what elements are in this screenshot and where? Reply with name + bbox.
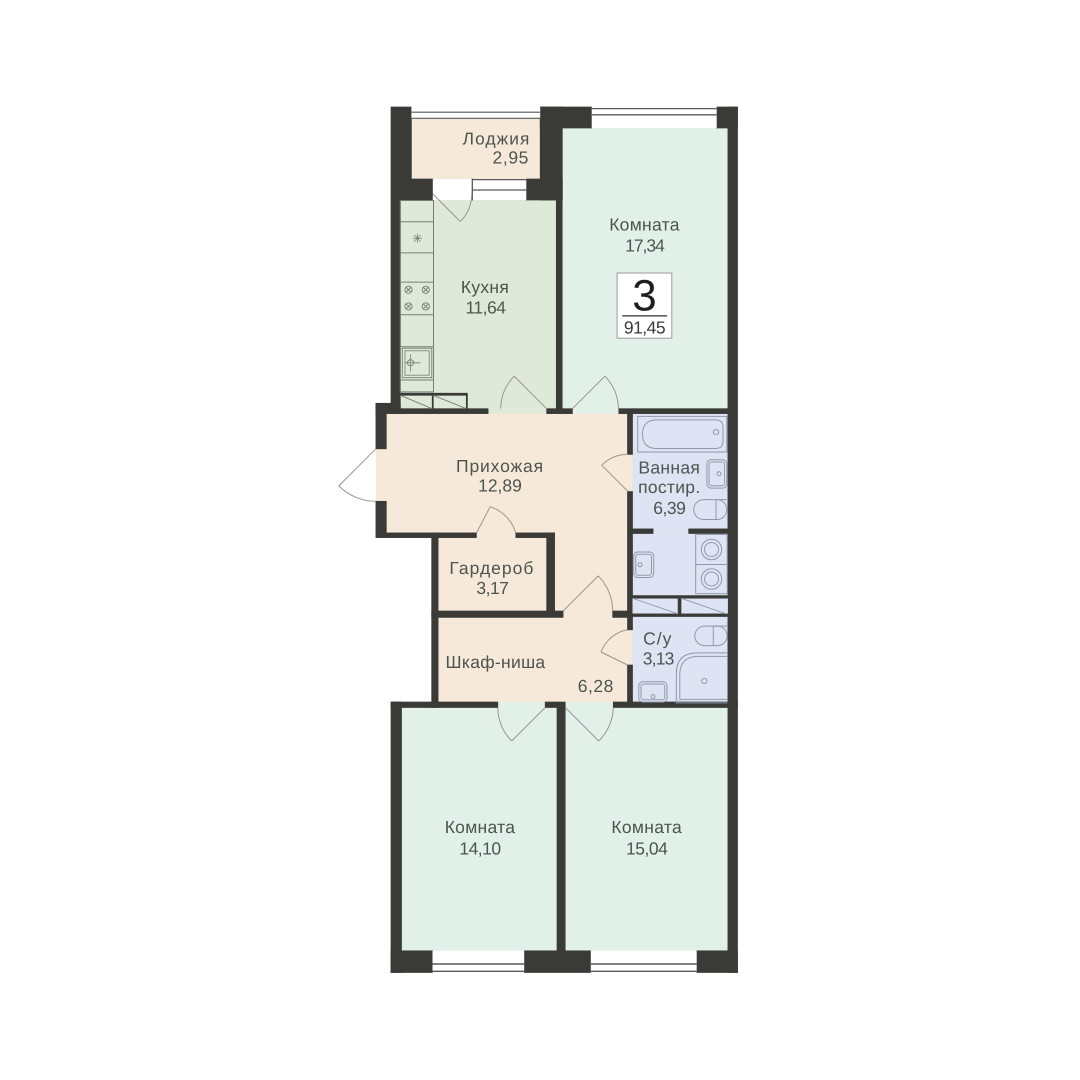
svg-text:11,64: 11,64 [466, 298, 507, 318]
svg-text:3: 3 [632, 272, 656, 321]
svg-text:Прихожая: Прихожая [456, 456, 544, 476]
svg-text:6,28: 6,28 [578, 676, 614, 696]
svg-text:14,10: 14,10 [459, 839, 501, 859]
svg-text:17,34: 17,34 [625, 235, 665, 255]
svg-text:Комната: Комната [611, 817, 682, 837]
svg-text:3,17: 3,17 [476, 578, 508, 598]
svg-text:Шкаф-ниша: Шкаф-ниша [446, 652, 546, 672]
svg-text:3,13: 3,13 [643, 649, 674, 669]
svg-text:6,39: 6,39 [653, 498, 685, 518]
svg-text:Кухня: Кухня [461, 277, 509, 297]
svg-text:12,89: 12,89 [478, 476, 522, 496]
svg-text:постир.: постир. [638, 477, 700, 497]
svg-text:15,04: 15,04 [626, 839, 668, 859]
svg-text:Гардероб: Гардероб [449, 558, 534, 578]
svg-text:Ванная: Ванная [638, 458, 700, 478]
svg-text:Комната: Комната [445, 817, 516, 837]
svg-text:91,45: 91,45 [624, 318, 665, 338]
svg-text:Лоджия: Лоджия [463, 129, 531, 149]
svg-text:Комната: Комната [609, 215, 680, 235]
svg-text:2,95: 2,95 [493, 148, 529, 168]
svg-text:С/у: С/у [643, 629, 672, 649]
